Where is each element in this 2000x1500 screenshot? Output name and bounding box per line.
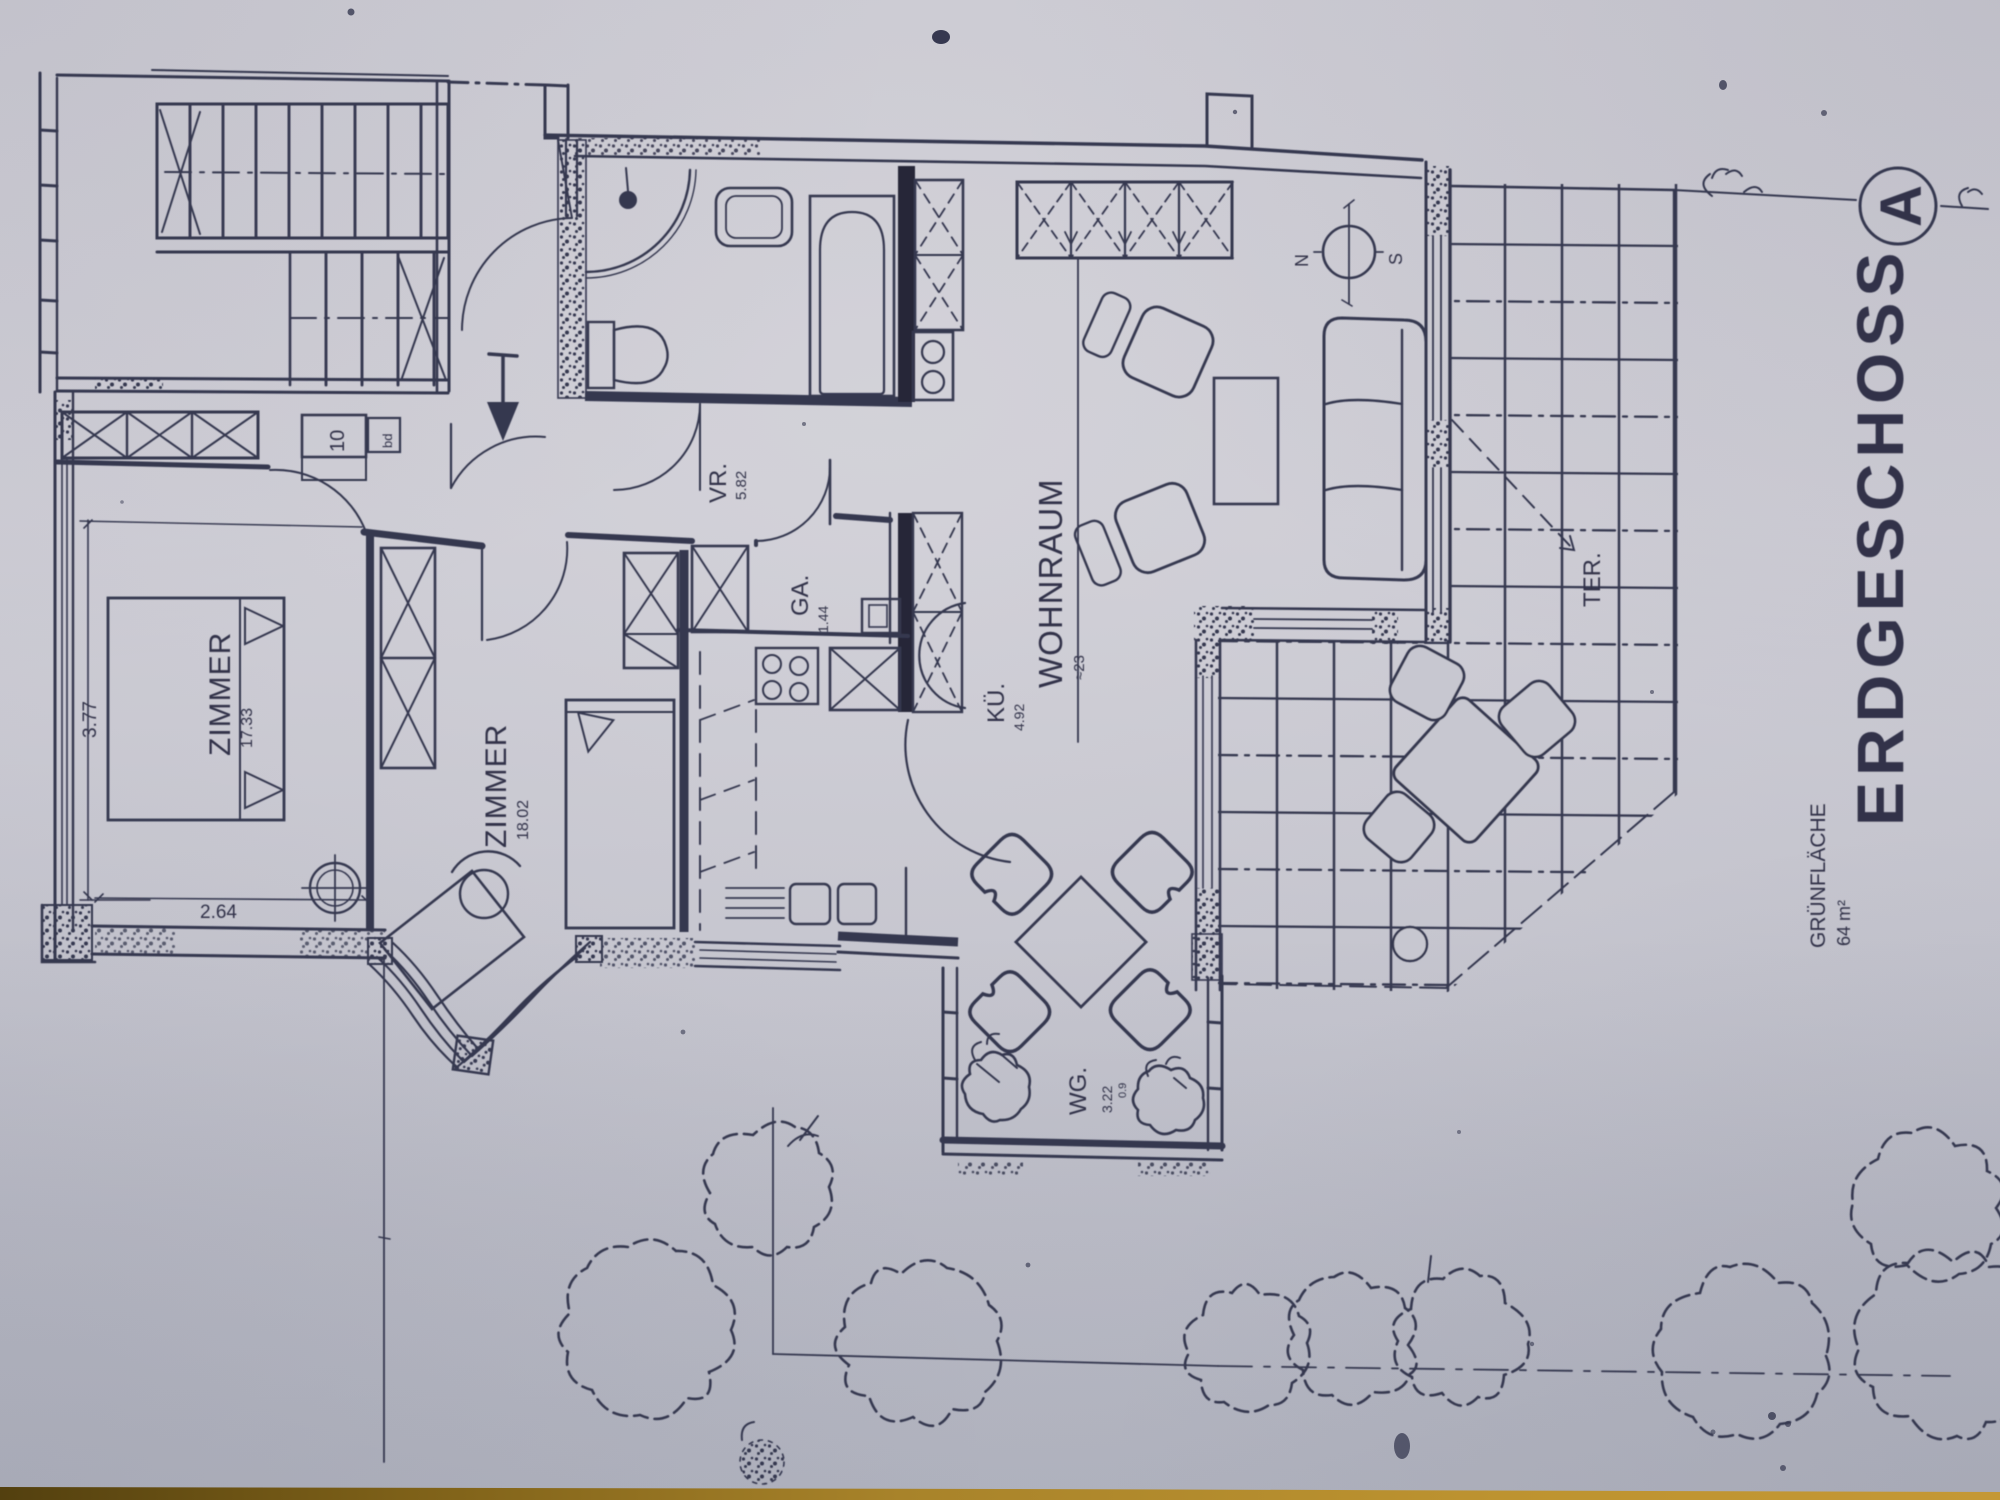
svg-text:N: N: [1292, 254, 1312, 267]
svg-text:GA.: GA.: [787, 575, 814, 616]
svg-text:ZIMMER: ZIMMER: [480, 724, 513, 848]
svg-text:GRÜNFLÄCHE: GRÜNFLÄCHE: [1807, 803, 1830, 948]
svg-text:18.02: 18.02: [515, 800, 532, 840]
svg-text:ERDGESCHOSS: ERDGESCHOSS: [1843, 247, 1917, 826]
svg-text:3.22: 3.22: [1099, 1086, 1115, 1113]
svg-text:1.44: 1.44: [815, 606, 831, 633]
svg-text:5.82: 5.82: [733, 471, 750, 500]
svg-text:bd: bd: [380, 434, 395, 448]
svg-text:64 m²: 64 m²: [1834, 900, 1854, 946]
svg-text:A: A: [1869, 185, 1934, 227]
svg-text:≈23: ≈23: [1071, 655, 1088, 680]
svg-text:WOHNRAUM: WOHNRAUM: [1032, 478, 1069, 688]
svg-text:0.9: 0.9: [1117, 1083, 1129, 1098]
svg-text:17.33: 17.33: [239, 708, 256, 748]
svg-text:ZIMMER: ZIMMER: [204, 632, 237, 756]
svg-text:2.64: 2.64: [200, 902, 237, 923]
svg-text:KÜ.: KÜ.: [983, 683, 1010, 723]
svg-text:3.77: 3.77: [80, 701, 101, 738]
svg-text:TER.: TER.: [1579, 552, 1606, 607]
svg-text:VR.: VR.: [705, 463, 732, 503]
svg-text:10: 10: [327, 430, 349, 452]
svg-text:4.92: 4.92: [1011, 704, 1027, 731]
svg-text:WG.: WG.: [1065, 1067, 1092, 1115]
svg-text:S: S: [1386, 253, 1406, 265]
